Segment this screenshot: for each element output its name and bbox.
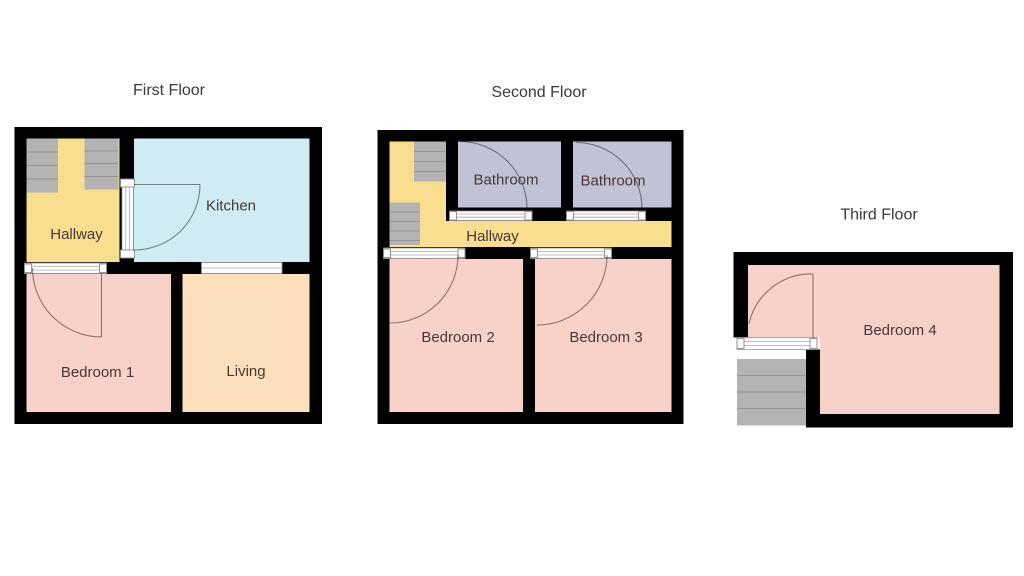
- svg-text:Hallway: Hallway: [466, 228, 519, 245]
- svg-text:Hallway: Hallway: [50, 226, 103, 243]
- svg-text:First Floor: First Floor: [133, 82, 206, 99]
- svg-text:Bedroom 4: Bedroom 4: [863, 322, 936, 339]
- svg-text:Bedroom 2: Bedroom 2: [421, 329, 494, 346]
- svg-text:Bedroom 1: Bedroom 1: [61, 364, 134, 381]
- svg-text:Living: Living: [226, 363, 265, 380]
- svg-text:Kitchen: Kitchen: [206, 198, 256, 215]
- svg-text:Third Floor: Third Floor: [840, 207, 918, 224]
- svg-text:Bathroom: Bathroom: [580, 173, 645, 190]
- svg-text:Bedroom 3: Bedroom 3: [569, 329, 642, 346]
- svg-text:Bathroom: Bathroom: [473, 172, 538, 189]
- svg-text:Second Floor: Second Floor: [491, 84, 587, 101]
